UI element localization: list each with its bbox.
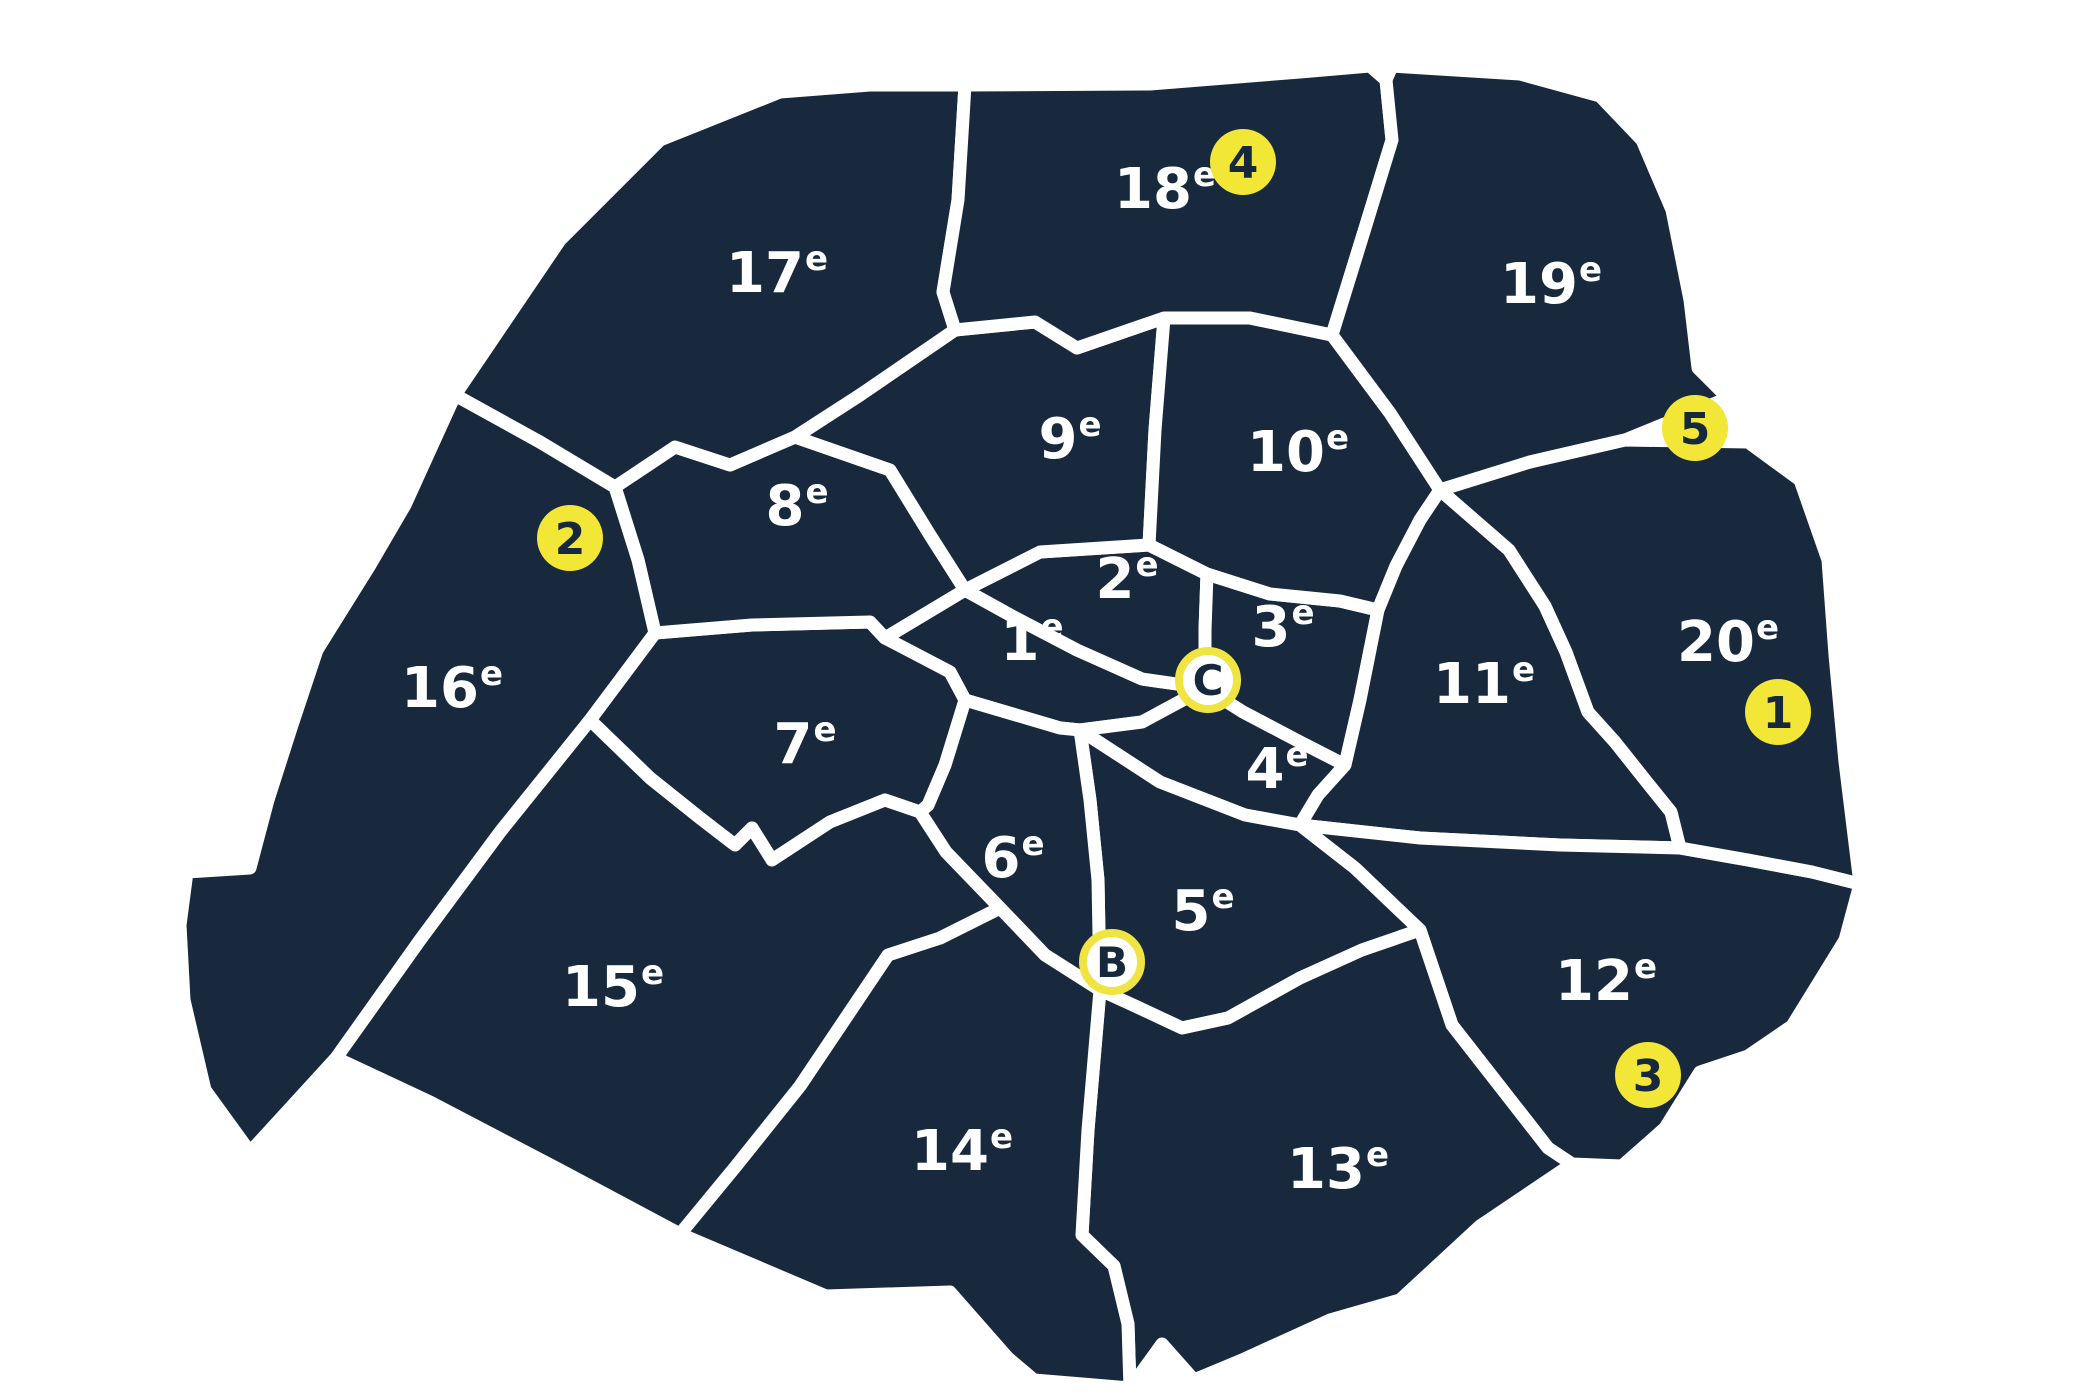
marker-5[interactable]: 5 <box>1662 395 1728 461</box>
marker-4[interactable]: 4 <box>1210 129 1276 195</box>
marker-1-circle[interactable] <box>1745 679 1811 745</box>
paris-map-svg: 1e2e3e4e5e6e7e8e9e10e11e12e13e14e15e16e1… <box>0 0 2100 1400</box>
marker-C-circle[interactable] <box>1179 651 1237 709</box>
marker-B[interactable]: B <box>1083 933 1141 991</box>
marker-4-circle[interactable] <box>1210 129 1276 195</box>
districts-layer <box>180 66 1860 1388</box>
marker-3[interactable]: 3 <box>1615 1042 1681 1108</box>
marker-1[interactable]: 1 <box>1745 679 1811 745</box>
marker-5-circle[interactable] <box>1662 395 1728 461</box>
marker-3-circle[interactable] <box>1615 1042 1681 1108</box>
marker-2[interactable]: 2 <box>537 505 603 571</box>
district-18[interactable] <box>943 66 1392 348</box>
marker-C[interactable]: C <box>1179 651 1237 709</box>
marker-2-circle[interactable] <box>537 505 603 571</box>
marker-B-circle[interactable] <box>1083 933 1141 991</box>
paris-arrondissement-map: 1e2e3e4e5e6e7e8e9e10e11e12e13e14e15e16e1… <box>0 0 2100 1400</box>
